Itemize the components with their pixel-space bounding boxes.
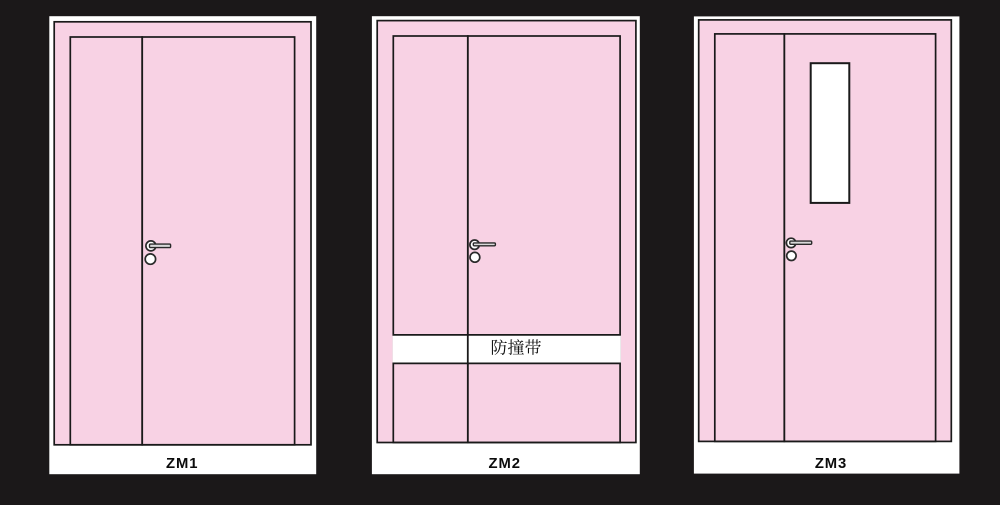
svg-text:ZM1: ZM1 [166, 456, 198, 472]
svg-text:ZM3: ZM3 [815, 456, 847, 472]
svg-text:ZM2: ZM2 [489, 456, 521, 472]
